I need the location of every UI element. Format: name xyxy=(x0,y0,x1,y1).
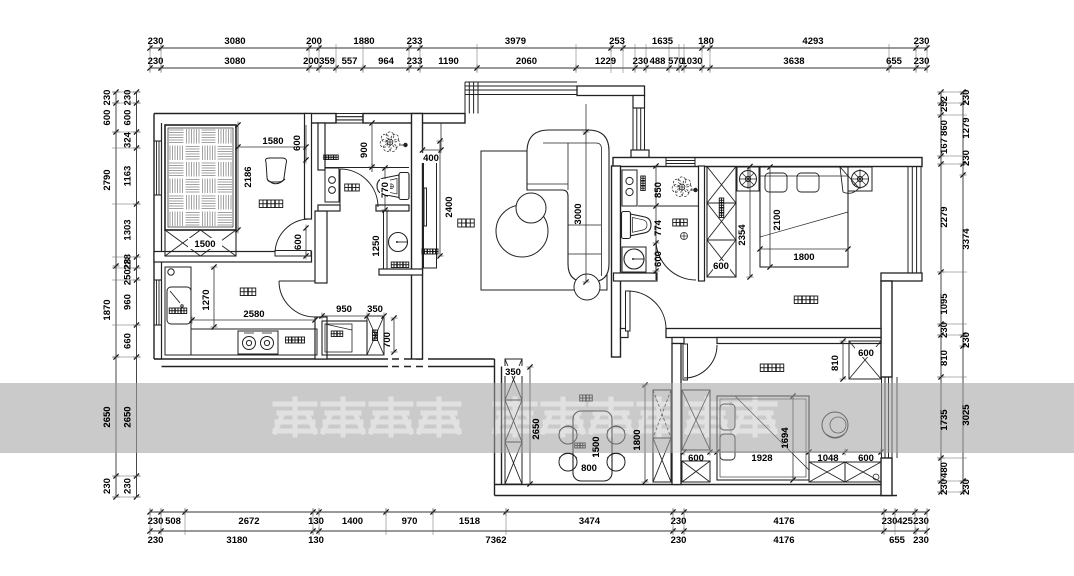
svg-text:600: 600 xyxy=(858,348,874,359)
svg-text:1229: 1229 xyxy=(595,56,616,67)
svg-text:655: 655 xyxy=(886,56,903,67)
svg-text:230: 230 xyxy=(939,479,950,495)
svg-text:1190: 1190 xyxy=(438,56,459,67)
svg-text:400: 400 xyxy=(423,153,439,164)
svg-text:850: 850 xyxy=(653,182,664,198)
svg-text:2650: 2650 xyxy=(102,406,113,427)
svg-text:1250: 1250 xyxy=(371,235,382,256)
svg-text:1735: 1735 xyxy=(939,409,950,431)
svg-text:230: 230 xyxy=(913,535,929,546)
svg-text:4176: 4176 xyxy=(773,535,794,546)
svg-text:1048: 1048 xyxy=(817,453,838,464)
svg-text:25028: 25028 xyxy=(123,259,134,285)
svg-text:4176: 4176 xyxy=(773,516,794,527)
svg-text:3979: 3979 xyxy=(505,36,526,47)
svg-text:970: 970 xyxy=(402,516,418,527)
svg-text:660: 660 xyxy=(123,333,134,349)
svg-text:1030: 1030 xyxy=(681,56,702,67)
svg-text:230: 230 xyxy=(102,478,113,494)
svg-text:964: 964 xyxy=(378,56,395,67)
svg-text:655: 655 xyxy=(889,535,906,546)
svg-text:4293: 4293 xyxy=(802,36,823,47)
svg-text:1635: 1635 xyxy=(652,36,674,47)
svg-text:800: 800 xyxy=(581,463,597,474)
svg-text:810: 810 xyxy=(939,350,950,366)
svg-text:230: 230 xyxy=(148,535,164,546)
svg-text:200: 200 xyxy=(303,56,319,67)
svg-text:230: 230 xyxy=(123,478,134,494)
svg-text:600: 600 xyxy=(292,135,303,151)
svg-text:425: 425 xyxy=(897,516,914,527)
svg-text:770: 770 xyxy=(380,182,391,198)
svg-text:810: 810 xyxy=(830,355,841,371)
svg-text:230: 230 xyxy=(961,150,972,166)
svg-text:2672: 2672 xyxy=(238,516,259,527)
svg-text:508: 508 xyxy=(165,516,181,527)
svg-text:1870: 1870 xyxy=(102,299,113,320)
svg-text:480: 480 xyxy=(939,462,950,478)
svg-text:700: 700 xyxy=(382,332,393,348)
svg-text:1500: 1500 xyxy=(591,436,602,457)
svg-text:1880: 1880 xyxy=(353,36,374,47)
svg-text:230: 230 xyxy=(913,516,929,527)
svg-text:2060: 2060 xyxy=(516,56,537,67)
svg-text:960: 960 xyxy=(123,294,134,310)
svg-text:3025: 3025 xyxy=(961,404,972,426)
svg-text:180: 180 xyxy=(698,36,714,47)
svg-text:600: 600 xyxy=(713,261,729,272)
svg-text:1580: 1580 xyxy=(262,136,283,147)
svg-text:230: 230 xyxy=(671,535,687,546)
svg-text:1270: 1270 xyxy=(201,289,212,310)
svg-text:1303: 1303 xyxy=(123,219,134,240)
svg-text:1518: 1518 xyxy=(459,516,480,527)
svg-text:130: 130 xyxy=(308,535,324,546)
svg-text:359: 359 xyxy=(319,56,335,67)
svg-text:3474: 3474 xyxy=(579,516,601,527)
svg-text:200: 200 xyxy=(306,36,322,47)
svg-text:600: 600 xyxy=(293,234,304,250)
svg-text:600: 600 xyxy=(123,110,134,126)
svg-text:324: 324 xyxy=(123,131,134,148)
svg-text:1800: 1800 xyxy=(793,252,814,263)
svg-text:1500: 1500 xyxy=(194,239,215,250)
svg-text:860: 860 xyxy=(939,120,950,136)
svg-text:230: 230 xyxy=(102,90,113,106)
svg-text:1400: 1400 xyxy=(342,516,363,527)
svg-text:230: 230 xyxy=(961,479,972,495)
svg-text:3000: 3000 xyxy=(573,203,584,224)
svg-text:2790: 2790 xyxy=(102,169,113,190)
svg-text:2100: 2100 xyxy=(772,209,783,230)
svg-text:1163: 1163 xyxy=(123,166,134,187)
svg-text:7362: 7362 xyxy=(485,535,506,546)
svg-text:900: 900 xyxy=(359,142,370,158)
svg-text:2279: 2279 xyxy=(939,206,950,227)
svg-text:2354: 2354 xyxy=(737,224,748,246)
svg-text:600: 600 xyxy=(653,251,664,267)
svg-text:3080: 3080 xyxy=(224,36,245,47)
svg-text:3080: 3080 xyxy=(224,56,245,67)
svg-text:252: 252 xyxy=(939,96,950,112)
svg-text:3180: 3180 xyxy=(226,535,247,546)
svg-text:2186: 2186 xyxy=(243,166,254,187)
svg-text:600: 600 xyxy=(858,453,874,464)
svg-text:3374: 3374 xyxy=(961,228,972,250)
svg-text:230: 230 xyxy=(961,332,972,348)
svg-text:350: 350 xyxy=(367,304,383,315)
svg-text:1279: 1279 xyxy=(961,117,972,138)
svg-text:230: 230 xyxy=(939,322,950,338)
svg-text:253: 253 xyxy=(609,36,625,47)
svg-text:488: 488 xyxy=(650,56,666,67)
svg-text:1800: 1800 xyxy=(632,429,643,450)
svg-text:600: 600 xyxy=(688,453,704,464)
svg-text:350: 350 xyxy=(505,367,521,378)
svg-text:167: 167 xyxy=(939,138,950,154)
svg-text:557: 557 xyxy=(342,56,358,67)
svg-text:774: 774 xyxy=(653,219,664,236)
svg-text:2650: 2650 xyxy=(123,406,134,427)
svg-text:600: 600 xyxy=(102,110,113,126)
svg-text:1095: 1095 xyxy=(939,293,950,315)
svg-text:1928: 1928 xyxy=(751,453,772,464)
svg-text:3638: 3638 xyxy=(783,56,804,67)
svg-text:1694: 1694 xyxy=(780,427,791,449)
svg-text:2650: 2650 xyxy=(531,418,542,439)
svg-text:2580: 2580 xyxy=(243,309,264,320)
svg-text:130: 130 xyxy=(308,516,324,527)
svg-text:950: 950 xyxy=(336,304,352,315)
svg-text:2400: 2400 xyxy=(444,196,455,217)
